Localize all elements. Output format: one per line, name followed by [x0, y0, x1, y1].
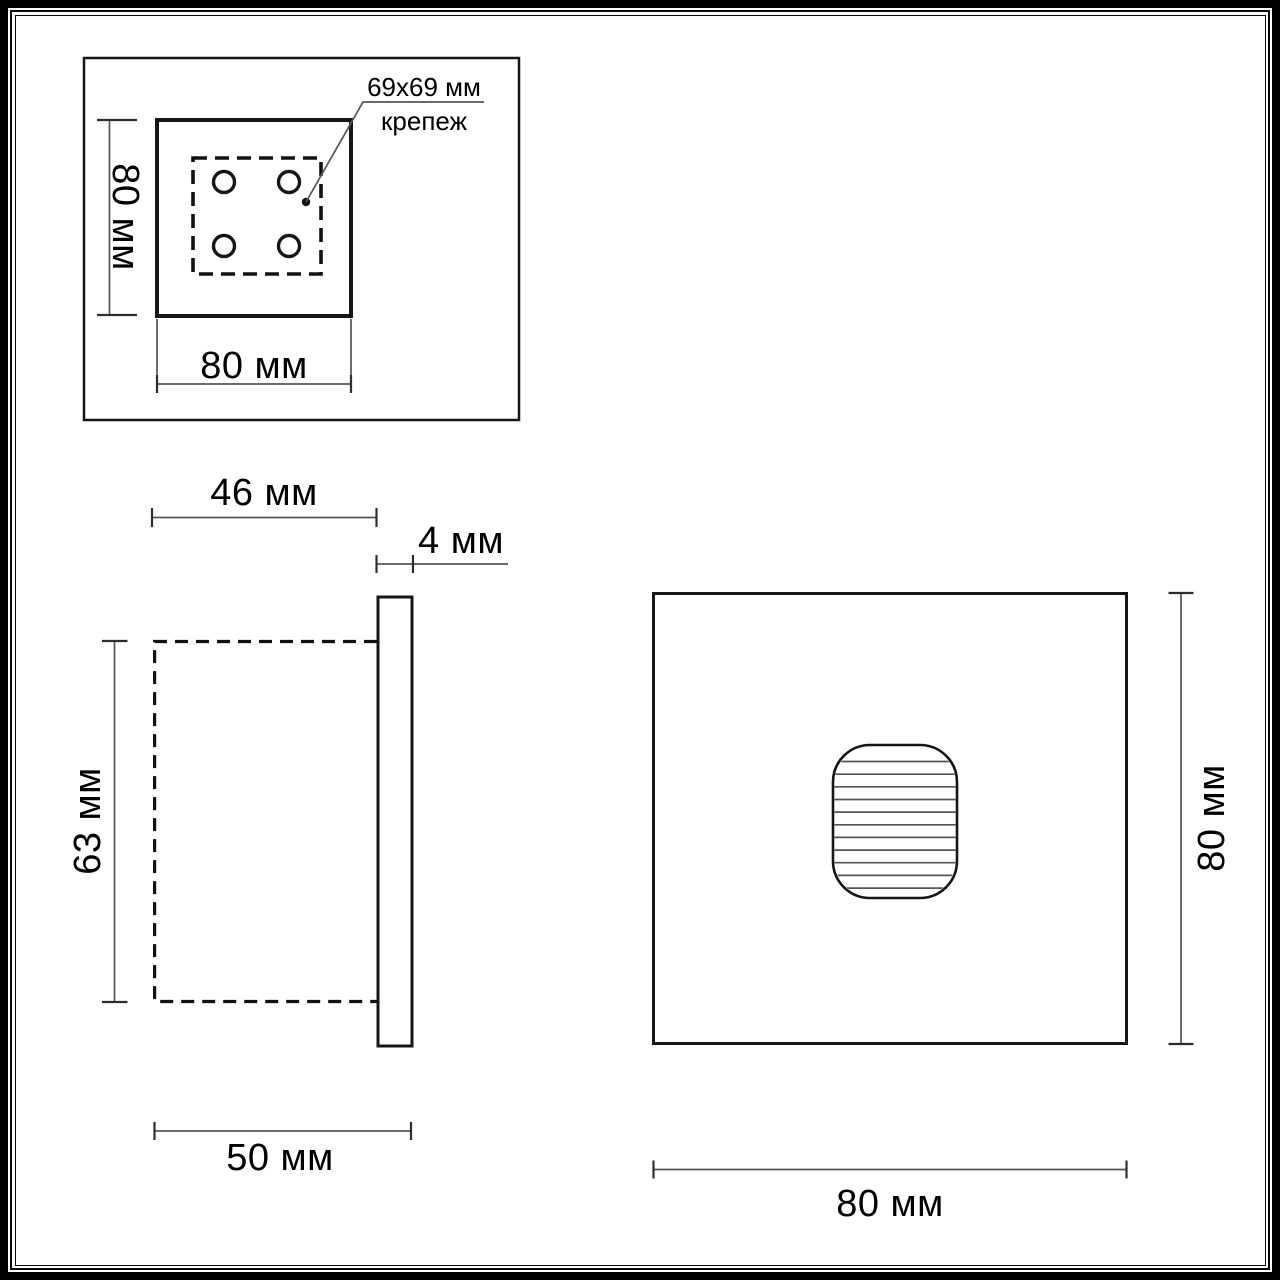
callout-text-size: 69x69 мм: [367, 72, 481, 102]
drawing-sheet: 69x69 мм крепеж 80 мм 80 мм 46 мм: [0, 0, 1280, 1280]
front-view-height-label: 80 мм: [1191, 764, 1233, 872]
side-view-plate-label: 4 мм: [418, 520, 504, 562]
mounting-hole: [279, 172, 300, 193]
side-view-depth-label: 46 мм: [210, 472, 318, 514]
front-view-width-label: 80 мм: [836, 1183, 944, 1225]
front-view: 80 мм 80 мм: [654, 593, 1234, 1225]
mounting-hole: [214, 236, 235, 257]
top-view-height-label: 80 мм: [104, 163, 146, 271]
recessed-body-dashed-outline: [155, 642, 377, 1002]
side-view-height-label: 63 мм: [67, 767, 109, 875]
technical-drawing: 69x69 мм крепеж 80 мм 80 мм 46 мм: [0, 0, 1280, 1280]
side-view-overall-label: 50 мм: [226, 1137, 334, 1179]
top-view: 69x69 мм крепеж 80 мм 80 мм: [84, 58, 519, 420]
faceplate-side-profile: [378, 597, 412, 1046]
mounting-hole: [279, 236, 300, 257]
side-view: 46 мм 4 мм 63 мм 50 мм: [67, 472, 508, 1179]
front-view-plate-outline: [654, 594, 1127, 1044]
callout-text-mount: крепеж: [381, 106, 468, 136]
mounting-hole: [214, 172, 235, 193]
top-view-width-label: 80 мм: [200, 345, 308, 387]
